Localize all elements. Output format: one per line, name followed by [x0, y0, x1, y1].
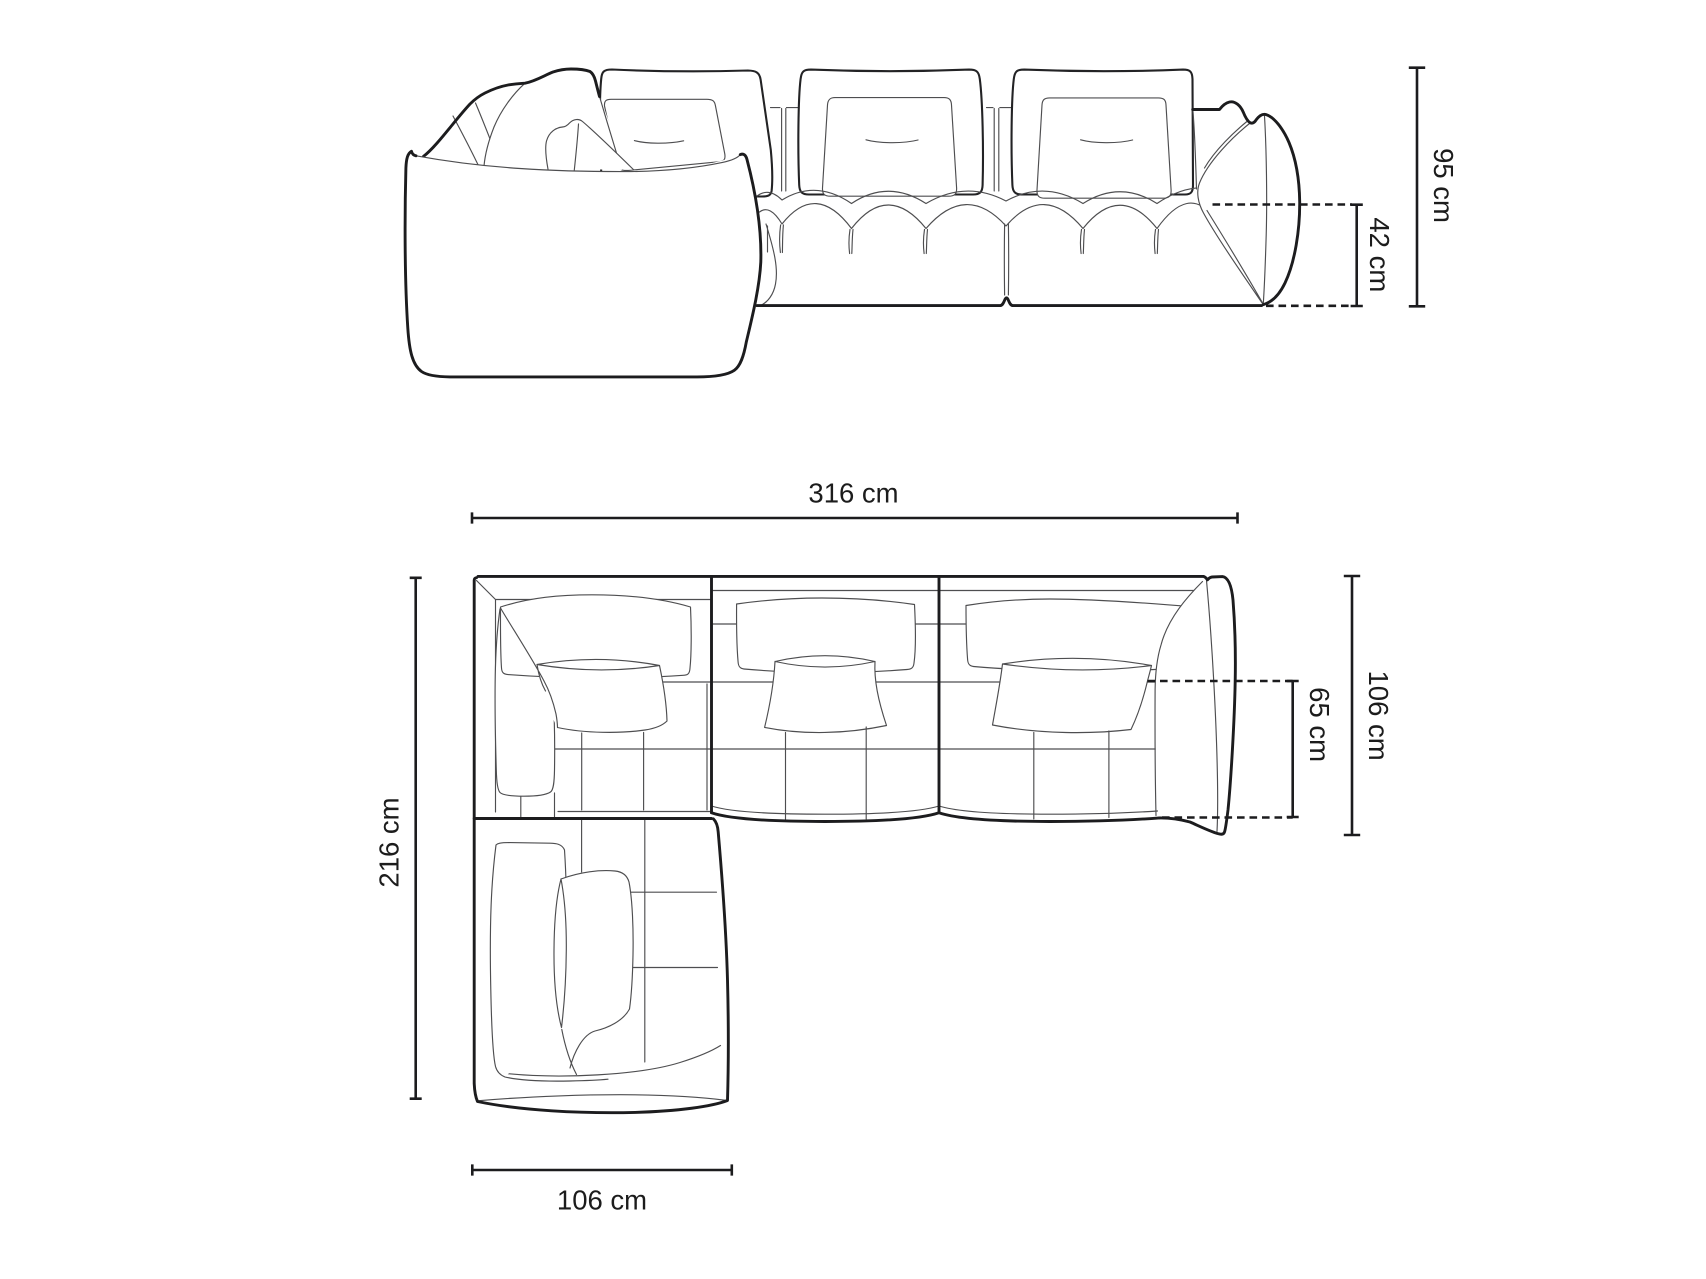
svg-text:106 cm: 106 cm [1363, 671, 1394, 761]
svg-text:42 cm: 42 cm [1364, 217, 1395, 292]
svg-text:106 cm: 106 cm [557, 1185, 647, 1216]
svg-text:95 cm: 95 cm [1428, 148, 1459, 223]
svg-text:216 cm: 216 cm [374, 797, 405, 887]
svg-text:316 cm: 316 cm [808, 478, 898, 509]
svg-text:65 cm: 65 cm [1304, 687, 1335, 762]
